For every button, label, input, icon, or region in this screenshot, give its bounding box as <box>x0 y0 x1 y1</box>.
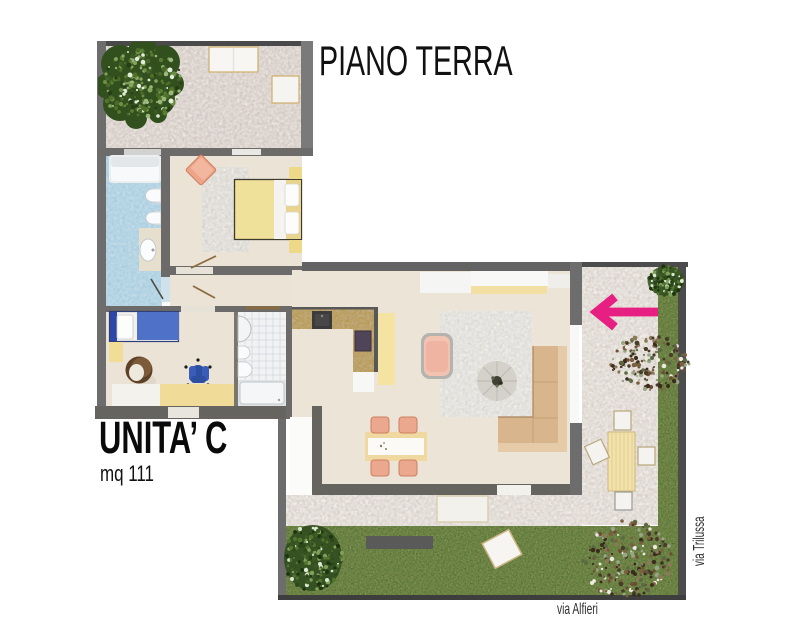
svg-text:UNITA’ C: UNITA’ C <box>99 413 227 463</box>
svg-text:mq 111: mq 111 <box>100 462 154 487</box>
svg-text:PIANO TERRA: PIANO TERRA <box>319 36 513 84</box>
svg-text:via Trilussa: via Trilussa <box>690 516 708 566</box>
svg-text:via Alfieri: via Alfieri <box>557 600 598 618</box>
